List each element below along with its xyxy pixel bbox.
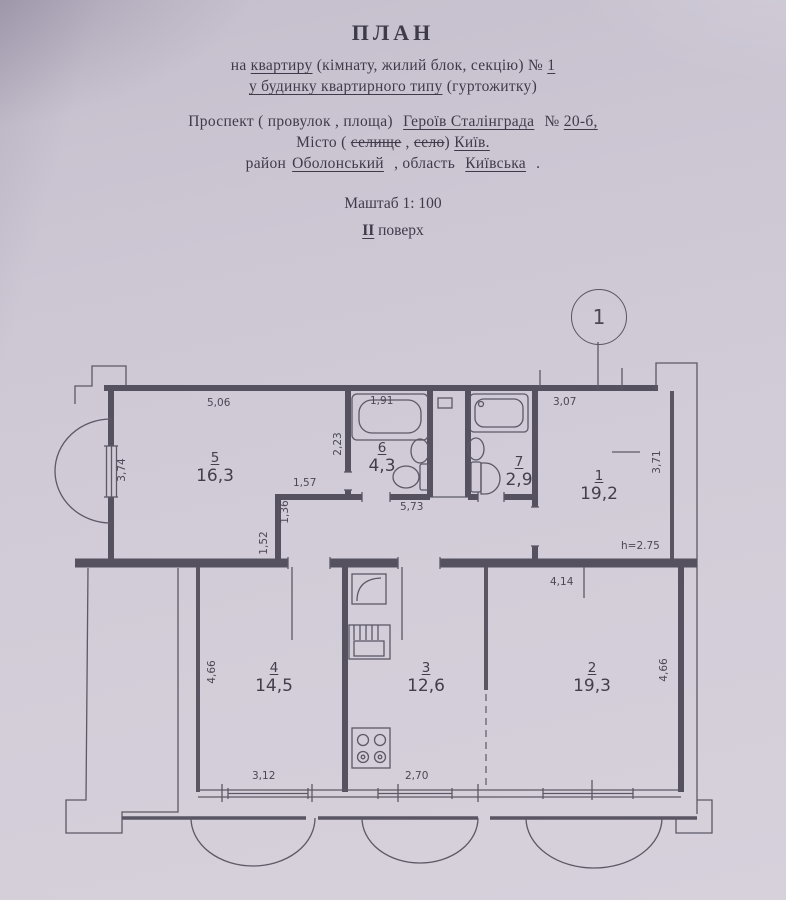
room-label-1: 119,2: [567, 468, 631, 504]
duct-box: [438, 398, 452, 408]
room-area: 12,6: [394, 676, 458, 696]
dim-270: 2,70: [405, 770, 428, 782]
dim-312: 3,12: [252, 770, 275, 782]
dim-374: 3,74: [116, 458, 128, 481]
shower-tray-inner: [475, 399, 523, 427]
drain-dot: [479, 402, 484, 407]
room-area: 16,3: [183, 466, 247, 486]
room-number: 1: [567, 468, 631, 484]
room-label-2: 219,3: [560, 660, 624, 696]
stove-burner-dot: [378, 755, 382, 759]
room-area: 19,2: [567, 484, 631, 504]
dim-371: 3,71: [651, 450, 663, 473]
stove-burner: [358, 735, 369, 746]
dim-height-note: h=2.75: [621, 540, 660, 552]
room-label-6: 64,3: [350, 440, 414, 476]
room-label-4: 414,5: [242, 660, 306, 696]
dim-573: 5,73: [400, 501, 423, 513]
dim-191: 1,91: [370, 395, 393, 407]
room-area: 19,3: [560, 676, 624, 696]
balcony-arc: [526, 818, 662, 868]
room-number: 3: [394, 660, 458, 676]
stove-burner: [358, 752, 369, 763]
dim-157: 1,57: [293, 477, 316, 489]
room-area: 2,9: [487, 470, 551, 490]
wall-right-outer: [656, 363, 697, 814]
bottom-wall-windows: [198, 788, 681, 799]
shower-tray-outline: [470, 394, 528, 432]
dim-414: 4,14: [550, 576, 573, 588]
dim-307: 3,07: [553, 396, 576, 408]
scanned-floor-plan-document: ПЛАН на квартиру (кімнату, жилий блок, с…: [0, 0, 786, 900]
room-label-7: 72,9: [487, 454, 551, 490]
balcony-arc-left: [55, 419, 111, 523]
stove-outline: [352, 728, 390, 768]
room-number: 4: [242, 660, 306, 676]
balconies-bottom: [122, 818, 697, 868]
stove-burner-dot: [361, 755, 365, 759]
balcony-arc: [362, 818, 478, 863]
dim-136: 1,36: [279, 500, 291, 523]
dim-223: 2,23: [332, 432, 344, 455]
balcony-arc: [191, 818, 315, 866]
kitchen-fixtures: [349, 574, 390, 768]
room-label-3: 312,6: [394, 660, 458, 696]
dim-466-right: 4,66: [658, 658, 670, 681]
room-number: 7: [487, 454, 551, 470]
dim-506: 5,06: [207, 397, 230, 409]
dim-152: 1,52: [258, 531, 270, 554]
stove-burner: [375, 735, 386, 746]
room-area: 14,5: [242, 676, 306, 696]
stair-strip-outline: [66, 568, 178, 833]
sink-basin: [354, 641, 384, 656]
toilet-tank-room7: [471, 462, 481, 492]
dim-466-left: 4,66: [206, 660, 218, 683]
room-number: 5: [183, 450, 247, 466]
stove-burner: [375, 752, 386, 763]
room-area: 4,3: [350, 456, 414, 476]
kitchen-cabinet-curve: [357, 578, 381, 601]
room-number: 2: [560, 660, 624, 676]
room-number: 6: [350, 440, 414, 456]
room-label-5: 516,3: [183, 450, 247, 486]
